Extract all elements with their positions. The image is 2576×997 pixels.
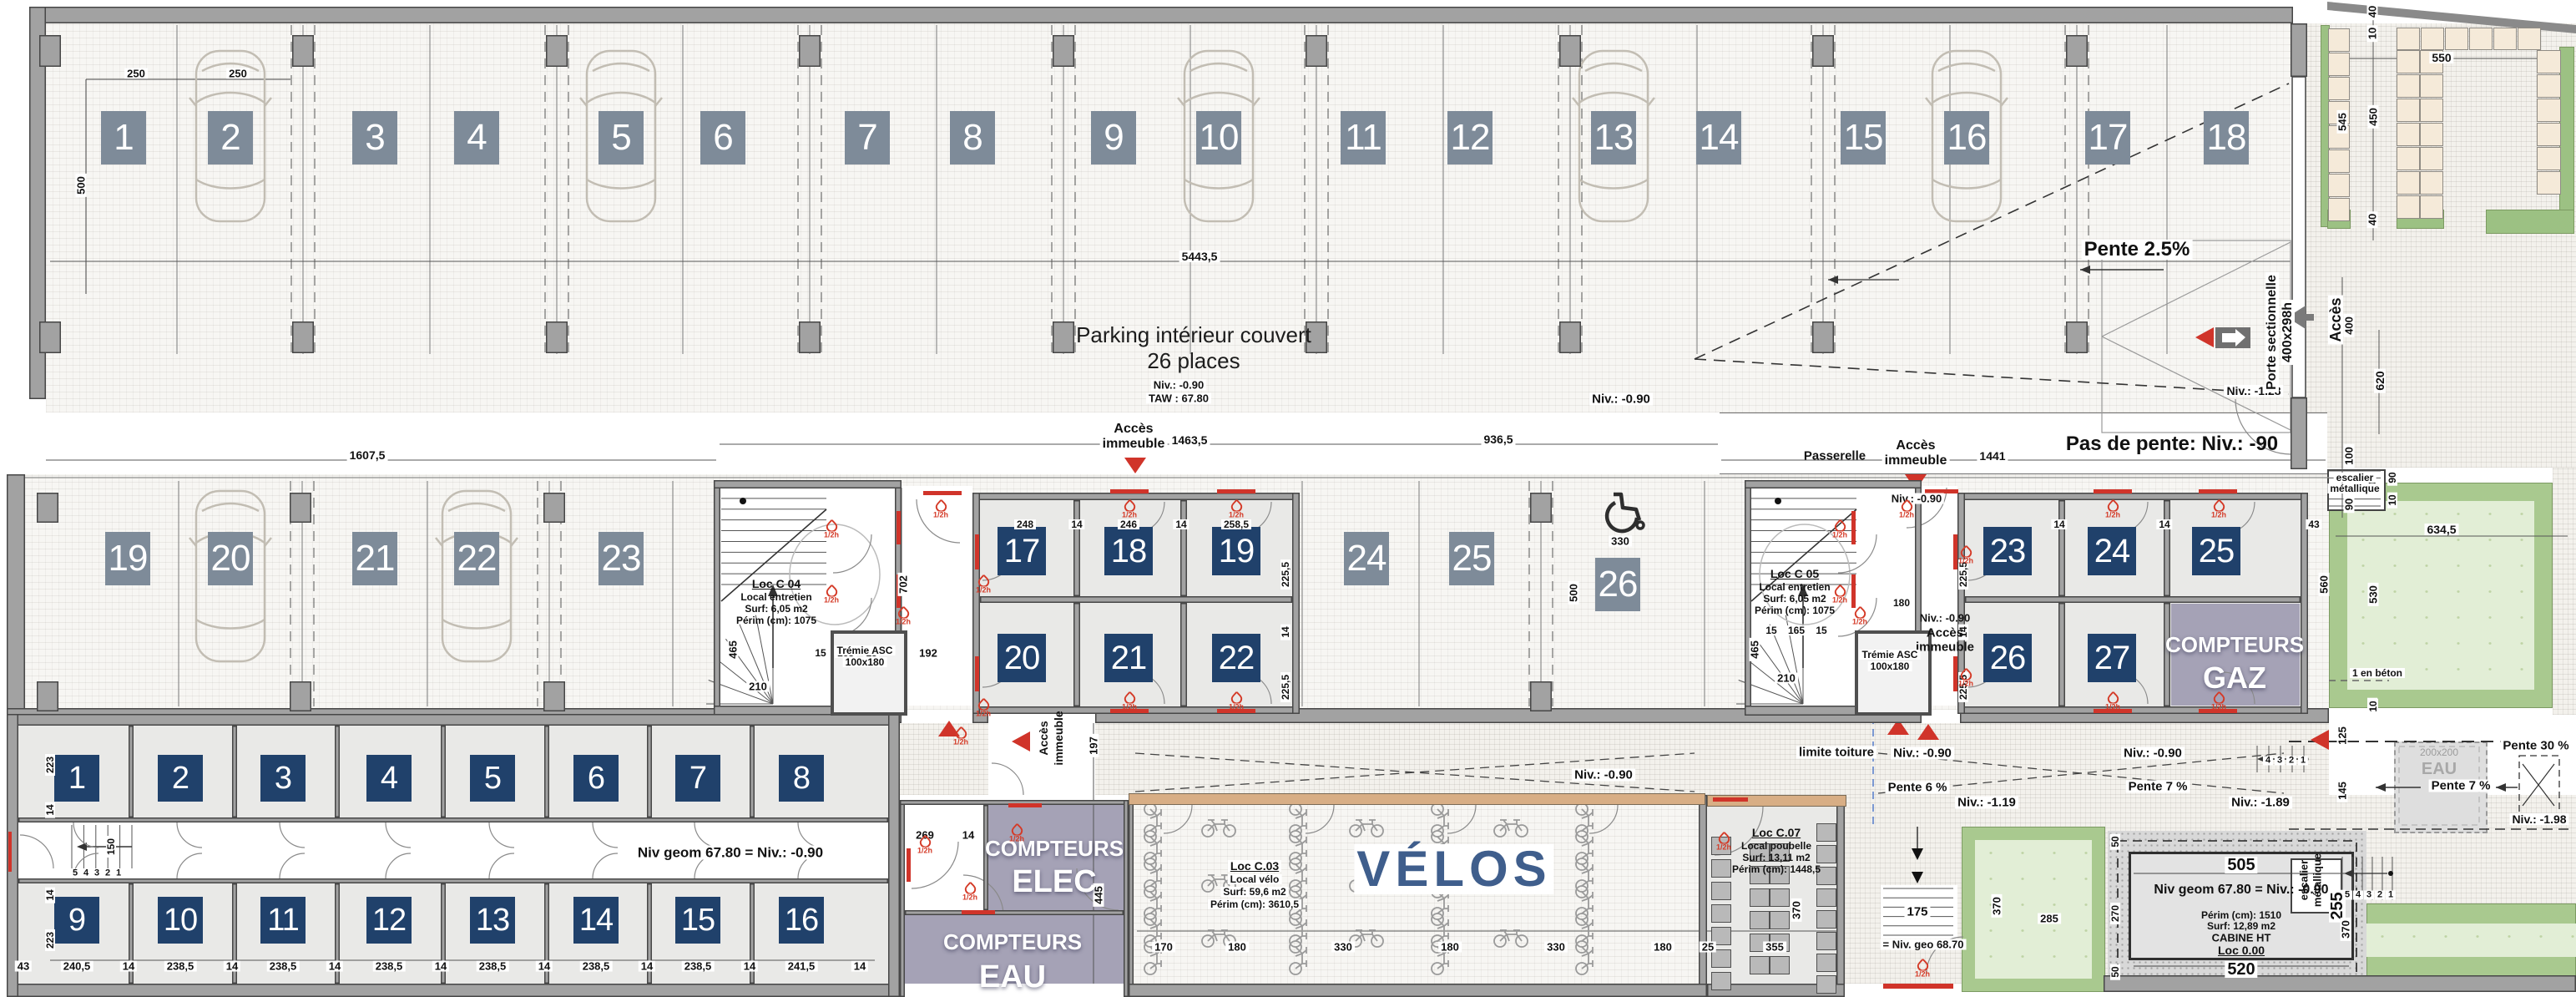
cave-3: 3 xyxy=(260,755,306,802)
parking-space-24: 24 xyxy=(1344,532,1389,585)
column xyxy=(2066,35,2088,67)
label-slope-30: Pente 30 % xyxy=(2500,740,2571,752)
cave-1: 1 xyxy=(54,755,99,802)
fire-rating-icon: 1/2h xyxy=(1229,500,1244,519)
label-dim-180-r: 180 xyxy=(1891,598,1912,608)
fire-rating-label: 1/2h xyxy=(1852,618,1867,626)
label-dim-100: 100 xyxy=(2344,444,2355,468)
column xyxy=(543,493,565,523)
fire-door-bar xyxy=(8,832,12,872)
label-tremie-l-2: 100x180 xyxy=(843,657,887,667)
label-loc-c07-surf: Surf: 13,11 m2 xyxy=(1742,853,1810,863)
label-dim-620: 620 xyxy=(2374,368,2386,392)
fire-rating-icon: 1/2h xyxy=(933,500,948,519)
column xyxy=(546,321,568,353)
waste-bin xyxy=(1816,888,1836,907)
fire-rating-icon: 1/2h xyxy=(2211,500,2226,519)
fire-rating-label: 1/2h xyxy=(976,710,991,718)
waste-bin xyxy=(1750,888,1770,907)
label-acc-l-1: Accès xyxy=(1111,423,1155,436)
wall xyxy=(2291,23,2307,77)
label-dim-40-top: 40 xyxy=(2367,3,2378,20)
label-loc-c03-surf: Surf: 59,6 m2 xyxy=(1220,887,1288,897)
label-dim-b16: 14 xyxy=(851,961,868,972)
label-dim-210-l: 210 xyxy=(746,681,770,692)
label-cab-surf: Surf: 12,89 m2 xyxy=(2207,921,2275,931)
patio-slab xyxy=(2397,195,2420,219)
fire-door-bar xyxy=(1851,511,1856,544)
fire-rating-icon: 1/2h xyxy=(1009,824,1024,843)
label-loc-c05-type: Local entretien xyxy=(1759,582,1830,592)
fire-rating-label: 1/2h xyxy=(1229,703,1244,711)
fire-rating-label: 1/2h xyxy=(917,847,932,855)
patio-slab xyxy=(2537,74,2561,98)
fire-door-bar xyxy=(1008,803,1042,807)
cave-27: 27 xyxy=(2088,634,2136,682)
label-acc-r-1: Accès xyxy=(1893,439,1937,453)
label-dim-180-v3: 180 xyxy=(1651,942,1674,953)
label-elec-line1: COMPTEURS xyxy=(985,838,1124,859)
label-dim-330-v1: 330 xyxy=(1331,942,1355,953)
fire-door-bar xyxy=(1217,489,1255,493)
fire-door-bar xyxy=(907,848,911,882)
label-dim-250-a: 250 xyxy=(124,68,148,79)
wall xyxy=(1836,795,1845,997)
fire-rating-label: 1/2h xyxy=(976,586,991,595)
label-dim-b11: 238,5 xyxy=(580,961,613,972)
parking-space-21: 21 xyxy=(352,532,397,585)
parking-space-20: 20 xyxy=(208,532,253,585)
wall xyxy=(1292,493,1300,714)
label-lvl-198: Niv.: -1.98 xyxy=(2509,813,2568,825)
column xyxy=(39,35,61,67)
wall xyxy=(7,984,900,997)
label-slope-6: Pente 6 % xyxy=(1886,782,1950,794)
label-st-bl-1: 1 xyxy=(114,869,124,878)
wall xyxy=(2104,975,2576,992)
label-lvl-parking: Niv.: -0.90 xyxy=(1151,380,1206,391)
parking-space-25: 25 xyxy=(1449,532,1494,585)
label-st-br-2: 2 xyxy=(2375,891,2385,900)
label-dim-258: 258,5 xyxy=(1221,519,1251,529)
label-velos-title: VÉLOS xyxy=(1354,844,1553,894)
label-dim-1463: 1463,5 xyxy=(1169,434,1210,446)
waste-bin xyxy=(1711,859,1731,878)
elevator-shaft-left xyxy=(831,630,907,716)
label-dim-285: 285 xyxy=(2038,913,2061,924)
wall xyxy=(18,817,888,822)
waste-bin xyxy=(1750,956,1770,974)
label-loc-c04: Loc C 04 xyxy=(752,578,801,590)
label-eau-grid-2: EAU xyxy=(2422,761,2457,777)
patio-slab xyxy=(2397,99,2420,122)
label-dim-90-ramp: 90 xyxy=(2344,496,2355,513)
wall xyxy=(1957,493,2308,500)
patio-slab xyxy=(2420,171,2443,195)
patio-slab xyxy=(2397,123,2420,146)
cell-wall xyxy=(750,726,755,817)
column xyxy=(1812,35,1834,67)
fire-rating-label: 1/2h xyxy=(1915,970,1930,979)
cave-5: 5 xyxy=(470,755,515,802)
label-cab-name: CABINE HT xyxy=(2212,933,2271,944)
cave-8: 8 xyxy=(779,755,824,802)
label-dim-170: 170 xyxy=(1152,942,1175,953)
patio-slab xyxy=(2328,28,2350,52)
label-loc-c04-perim: Périm (cm): 1075 xyxy=(736,615,816,625)
label-esc-met-t2: métallique xyxy=(2327,483,2382,493)
fire-rating-icon: 1/2h xyxy=(1832,520,1847,539)
label-lvl-189: Niv.: -1.89 xyxy=(2229,797,2292,809)
label-dim-14-l2: 14 xyxy=(1173,519,1189,529)
label-elec-line2: ELEC xyxy=(1012,866,1096,898)
label-st-br-1: 1 xyxy=(2386,891,2396,900)
patio-slab xyxy=(2537,50,2561,73)
label-dim-370-br: 370 xyxy=(2341,918,2351,941)
cave-22: 22 xyxy=(1212,634,1260,682)
label-lvl-strip-2: Niv.: -0.90 xyxy=(1891,747,1954,760)
label-esc-met-b1: escalier xyxy=(2299,860,2310,900)
wall xyxy=(1129,984,1707,997)
fire-rating-label: 1/2h xyxy=(933,511,948,519)
fire-rating-icon: 1/2h xyxy=(1832,585,1847,605)
waste-bin xyxy=(1816,823,1836,842)
fire-rating-icon: 1/2h xyxy=(953,727,968,746)
waste-bin xyxy=(1816,910,1836,929)
label-dim-40-mid: 40 xyxy=(2367,211,2378,228)
cave-7: 7 xyxy=(675,755,720,802)
fire-rating-icon: 1/2h xyxy=(2105,500,2120,519)
label-st-bl-3: 3 xyxy=(92,869,102,878)
label-loc-c04-surf: Surf: 6,05 m2 xyxy=(745,604,807,614)
waste-bin xyxy=(1750,911,1770,929)
label-lvl-mid: Niv.: -0.90 xyxy=(1589,393,1653,406)
label-dim-14-s2: 14 xyxy=(45,887,55,903)
label-dim-5443: 5443,5 xyxy=(1179,251,1220,262)
label-loc-c05: Loc C 05 xyxy=(1770,568,1819,579)
label-acc-core-1: Accès xyxy=(1927,627,1963,640)
fire-door-bar xyxy=(2199,489,2237,493)
column xyxy=(799,321,821,353)
column xyxy=(1053,321,1074,353)
label-dim-248: 248 xyxy=(1014,519,1036,529)
label-dim-250-b: 250 xyxy=(226,68,250,79)
patio-slab xyxy=(2397,171,2420,195)
label-lvl-corridor: Niv geom 67.80 = Niv.: -0.90 xyxy=(635,846,826,860)
label-lvl-core-r: Niv.: -0.90 xyxy=(1920,613,1970,624)
label-slope-none: Pas de pente: Niv.: -90 xyxy=(2066,434,2278,454)
wall xyxy=(1699,795,1707,997)
label-dim-180-v2: 180 xyxy=(1438,942,1462,953)
parking-space-17: 17 xyxy=(2085,111,2130,164)
fire-rating-icon: 1/2h xyxy=(824,520,839,539)
cave-18: 18 xyxy=(1104,527,1153,575)
label-dim-14-v: 14 xyxy=(960,830,977,841)
label-dim-b13: 238,5 xyxy=(682,961,715,972)
column xyxy=(290,493,311,523)
parking-space-12: 12 xyxy=(1447,111,1493,164)
parking-space-5: 5 xyxy=(599,111,644,164)
label-dim-10-top: 10 xyxy=(2367,25,2378,42)
label-dim-936: 936,5 xyxy=(1481,433,1515,445)
label-tremie-r-1: Trémie ASC xyxy=(1860,650,1921,660)
parking-space-26: 26 xyxy=(1595,558,1640,611)
cave-16: 16 xyxy=(779,897,824,944)
cave-17: 17 xyxy=(998,527,1046,575)
fire-door-bar xyxy=(1851,574,1856,608)
label-dim-180-v1: 180 xyxy=(1225,942,1249,953)
label-dim-1607: 1607,5 xyxy=(347,449,388,461)
label-dim-b15: 241,5 xyxy=(785,961,818,972)
parking-space-1: 1 xyxy=(101,111,146,164)
cave-6: 6 xyxy=(573,755,619,802)
patio-slab xyxy=(2328,53,2350,76)
waste-bin xyxy=(1770,956,1790,974)
patio-slab xyxy=(2420,123,2443,146)
cell-wall xyxy=(544,726,549,817)
column xyxy=(37,493,58,523)
fire-door-bar xyxy=(962,910,995,914)
label-gaz-line2: GAZ xyxy=(2203,663,2266,693)
label-dim-175: 175 xyxy=(1904,906,1930,919)
cave-14: 14 xyxy=(573,897,619,944)
fire-rating-icon: 1/2h xyxy=(2105,692,2120,711)
fire-door-bar xyxy=(1110,489,1149,493)
label-tremie-r-2: 100x180 xyxy=(1868,661,1912,671)
label-dim-223-b: 223 xyxy=(45,929,55,951)
column xyxy=(1306,35,1327,67)
fire-rating-label: 1/2h xyxy=(1899,511,1914,519)
label-dim-192: 192 xyxy=(917,648,940,659)
patio-slab xyxy=(2518,28,2541,50)
wall xyxy=(1073,500,1080,596)
fire-rating-icon: 1/2h xyxy=(896,607,911,626)
label-dim-465-r: 465 xyxy=(1750,638,1760,661)
parking-space-3: 3 xyxy=(352,111,397,164)
label-dim-b12: 14 xyxy=(639,961,655,972)
label-limite-toiture: limite toiture xyxy=(1796,746,1876,759)
label-dim-370-g: 370 xyxy=(1992,894,2003,918)
parking-space-15: 15 xyxy=(1841,111,1886,164)
fire-rating-label: 1/2h xyxy=(953,738,968,746)
wall xyxy=(888,714,900,997)
label-lvl-strip-1: Niv.: -0.90 xyxy=(1572,769,1635,782)
label-dim-246: 246 xyxy=(1118,519,1139,529)
label-dim-b6: 14 xyxy=(326,961,343,972)
label-dim-370-p: 370 xyxy=(1791,898,1802,922)
label-st-mr-4: 4 xyxy=(2263,757,2273,766)
fire-rating-label: 1/2h xyxy=(1229,511,1244,519)
label-st-br-5: 5 xyxy=(2342,891,2352,900)
parking-space-22: 22 xyxy=(454,532,499,585)
label-dim-10-br: 10 xyxy=(2368,698,2378,714)
label-dim-b4: 14 xyxy=(224,961,240,972)
fire-rating-icon: 1/2h xyxy=(976,699,991,718)
label-dim-450: 450 xyxy=(2368,105,2379,129)
fire-door-bar xyxy=(897,511,901,544)
parking-space-23: 23 xyxy=(599,532,644,585)
label-dim-14-r2: 14 xyxy=(2156,519,2172,529)
label-acc-walk-2: immeuble xyxy=(1053,711,1064,765)
waste-bin xyxy=(1770,888,1790,907)
wall xyxy=(1180,500,1187,596)
label-lvl-geo-6870: = Niv. geo 68.70 xyxy=(1881,939,1967,950)
parking-space-16: 16 xyxy=(1944,111,1989,164)
label-loc-c07-type: Local poubelle xyxy=(1741,841,1811,851)
wall xyxy=(980,596,1292,603)
fire-rating-label: 1/2h xyxy=(1122,703,1137,711)
label-eau-line1: COMPTEURS xyxy=(943,931,1082,953)
column xyxy=(543,681,565,711)
waste-bin xyxy=(1816,954,1836,972)
patio-slab xyxy=(2397,50,2420,73)
label-dim-530: 530 xyxy=(2368,583,2379,606)
parking-space-8: 8 xyxy=(950,111,995,164)
fire-rating-icon: 1/2h xyxy=(962,883,977,902)
cave-4: 4 xyxy=(366,755,412,802)
column xyxy=(1559,321,1581,353)
fire-rating-icon: 1/2h xyxy=(1958,669,1973,688)
patio-slab xyxy=(2445,28,2468,50)
label-beton: 1 en béton xyxy=(2350,668,2405,678)
fire-rating-label: 1/2h xyxy=(2105,703,2120,711)
parking-space-2: 2 xyxy=(208,111,253,164)
label-dim-223-a: 223 xyxy=(45,754,55,776)
fire-rating-label: 1/2h xyxy=(1958,680,1973,688)
label-dim-b7: 238,5 xyxy=(373,961,406,972)
label-dim-50-a: 50 xyxy=(2110,833,2120,849)
wall xyxy=(7,474,25,723)
patio-slab xyxy=(2397,147,2420,170)
cell-wall xyxy=(335,726,340,817)
label-acc-r-2: immeuble xyxy=(1882,454,1950,468)
label-dim-14-s1: 14 xyxy=(45,802,55,817)
cave-10: 10 xyxy=(158,897,203,944)
wall xyxy=(29,7,2293,23)
label-dim-165-b: 165 xyxy=(1786,625,1807,635)
label-dim-b3: 238,5 xyxy=(164,961,197,972)
fire-rating-icon: 1/2h xyxy=(1716,833,1731,852)
fire-rating-icon: 1/2h xyxy=(1122,500,1137,519)
label-dim-465-l: 465 xyxy=(728,638,739,661)
label-dim-355: 355 xyxy=(1763,942,1786,953)
label-cab-loc: Loc 0.00 xyxy=(2218,944,2265,956)
label-dim-b14: 14 xyxy=(741,961,758,972)
fire-rating-icon: 1/2h xyxy=(1852,607,1867,626)
label-dim-14-l1: 14 xyxy=(1068,519,1084,529)
label-loc-c03: Loc C.03 xyxy=(1228,860,1281,872)
cave-23: 23 xyxy=(1983,527,2032,575)
label-dim-15-a: 15 xyxy=(812,648,828,658)
cave-21: 21 xyxy=(1104,634,1153,682)
label-st-mr-3: 3 xyxy=(2275,757,2285,766)
column xyxy=(1812,321,1834,353)
label-dim-14-l3: 14 xyxy=(1280,624,1291,640)
wall xyxy=(7,714,900,726)
label-dim-634: 634,5 xyxy=(2424,524,2458,535)
label-loc-c07: Loc C.07 xyxy=(1752,827,1801,838)
fire-rating-label: 1/2h xyxy=(2211,511,2226,519)
label-dim-b10: 14 xyxy=(536,961,553,972)
label-dim-197: 197 xyxy=(1088,734,1099,757)
patio-slab xyxy=(2420,99,2443,122)
cave-13: 13 xyxy=(470,897,515,944)
label-acc-l-2: immeuble xyxy=(1100,438,1168,451)
label-porte-sect-1: Porte sectionnelle xyxy=(2265,272,2279,392)
parking-title-line1: Parking intérieur couvert xyxy=(1076,324,1311,346)
label-dim-15-d: 15 xyxy=(1813,625,1829,635)
parking-title-line2: 26 places xyxy=(1147,350,1240,372)
patio-slab xyxy=(2420,74,2443,98)
label-dim-10-esc: 10 xyxy=(2387,492,2397,508)
label-dim-225-l1: 225,5 xyxy=(1280,559,1291,590)
fire-rating-label: 1/2h xyxy=(1122,511,1137,519)
label-porte-sect-2: 400x298h xyxy=(2281,300,2295,365)
label-loc-c05-surf: Surf: 6,05 m2 xyxy=(1763,594,1826,604)
fire-rating-label: 1/2h xyxy=(1832,531,1847,539)
label-dim-210-r: 210 xyxy=(1775,673,1798,684)
label-st-mr-1: 1 xyxy=(2298,757,2308,766)
label-dim-400-ramp: 400 xyxy=(2344,314,2355,337)
wall xyxy=(1745,480,1922,488)
patio-slab xyxy=(2397,28,2420,50)
label-dim-b2: 14 xyxy=(120,961,137,972)
fire-rating-icon: 1/2h xyxy=(1899,500,1914,519)
label-slope-7b: Pente 7 % xyxy=(2429,780,2493,792)
column xyxy=(292,35,314,67)
label-dim-550: 550 xyxy=(2429,52,2453,63)
cave-2: 2 xyxy=(158,755,203,802)
patio-slab xyxy=(2537,99,2561,122)
wall xyxy=(1745,480,1751,716)
column xyxy=(2066,321,2088,353)
label-lvl-strip-3: Niv.: -0.90 xyxy=(2121,747,2185,760)
label-lvl-taw: TAW : 67.80 xyxy=(1146,393,1211,404)
label-st-bl-5: 5 xyxy=(70,869,80,878)
wall xyxy=(18,878,888,883)
patio-slab xyxy=(2420,195,2443,219)
waste-bin xyxy=(1711,882,1731,900)
parking-space-6: 6 xyxy=(700,111,745,164)
label-dim-545: 545 xyxy=(2337,110,2348,134)
cave-9: 9 xyxy=(54,897,99,944)
label-loc-c07-perim: Périm (cm): 1448,5 xyxy=(1732,864,1821,874)
fire-rating-label: 1/2h xyxy=(1716,843,1731,852)
wall xyxy=(1957,706,2308,714)
label-acc-walk-1: Accès xyxy=(1038,721,1049,755)
waste-bin xyxy=(1770,911,1790,929)
label-dim-225-l2: 225,5 xyxy=(1280,672,1291,702)
label-lvl-acc-r: Niv.: -0.90 xyxy=(1889,493,1944,504)
label-dim-500-row1: 500 xyxy=(76,174,87,197)
label-passerelle: Passerelle xyxy=(1804,450,1866,463)
label-tremie-l-1: Trémie ASC xyxy=(835,645,896,655)
wall xyxy=(1180,603,1187,706)
fire-rating-label: 1/2h xyxy=(2211,703,2226,711)
waste-bin xyxy=(1711,972,1731,990)
fire-rating-icon: 1/2h xyxy=(1915,959,1930,979)
waste-bin xyxy=(1816,932,1836,950)
patio-slab xyxy=(2537,147,2561,170)
patio-slab xyxy=(2493,28,2517,50)
column xyxy=(290,681,311,711)
patio-slab xyxy=(2537,171,2561,195)
fire-door-bar xyxy=(975,534,979,569)
column xyxy=(1530,681,1552,711)
label-dim-14-r1: 14 xyxy=(2051,519,2067,529)
label-acc-core-2: immeuble xyxy=(1916,641,1974,654)
fire-rating-icon: 1/2h xyxy=(917,836,932,855)
